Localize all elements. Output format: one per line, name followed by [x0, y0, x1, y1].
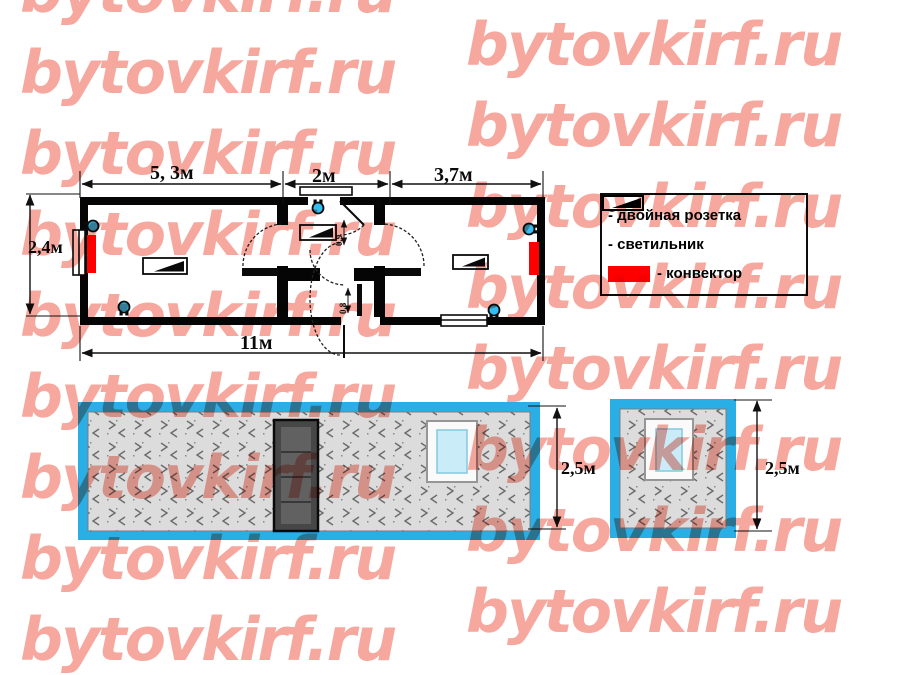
- elevation-door: [274, 420, 318, 531]
- legend-box: - двойная розетка - светильник - конвект…: [600, 193, 808, 296]
- elevation-window: [427, 421, 477, 482]
- socket: [489, 305, 500, 319]
- floor-plan: [26, 171, 545, 361]
- dim-total: 11м: [240, 333, 273, 353]
- convector-left: [87, 235, 96, 273]
- dim-top-mid: 2м: [312, 166, 336, 186]
- drawing-page: 5, 3м 2м 3,7м 2,4м 11м 90 0,9 0,8 2,5м 2…: [0, 0, 900, 675]
- convector-icon: [608, 266, 650, 282]
- legend-label: - конвектор: [657, 265, 742, 282]
- door-leaves: [242, 268, 421, 316]
- dim-door-top: 90: [373, 200, 382, 209]
- socket: [313, 200, 324, 214]
- dim-top-right: 3,7м: [434, 165, 473, 185]
- dim-door-hall: 0,9: [335, 235, 344, 246]
- canopy: [300, 187, 352, 195]
- light-icon: [602, 195, 644, 211]
- light-room-right: [453, 255, 488, 269]
- elevation-end: [610, 399, 736, 538]
- legend-label: - светильник: [608, 236, 704, 253]
- dim-end-height: 2,5м: [765, 459, 800, 477]
- interior-walls: [277, 205, 385, 317]
- legend-item-convector: - конвектор: [608, 265, 800, 282]
- light-hall: [300, 225, 336, 240]
- legend-item-light: - светильник: [608, 236, 800, 253]
- light-room-left: [143, 258, 187, 274]
- exit-opening: [341, 316, 380, 326]
- dim-door-exit: 0,8: [339, 303, 348, 314]
- socket: [524, 224, 538, 235]
- socket: [119, 302, 130, 316]
- dim-side: 2,4м: [28, 238, 63, 256]
- plan-drawing: [0, 0, 900, 675]
- elevation-window: [645, 419, 693, 480]
- dim-rear-height: 2,5м: [561, 459, 596, 477]
- convector-right: [529, 242, 539, 275]
- elevation-rear: [78, 402, 540, 540]
- dim-top-left: 5, 3м: [150, 163, 194, 183]
